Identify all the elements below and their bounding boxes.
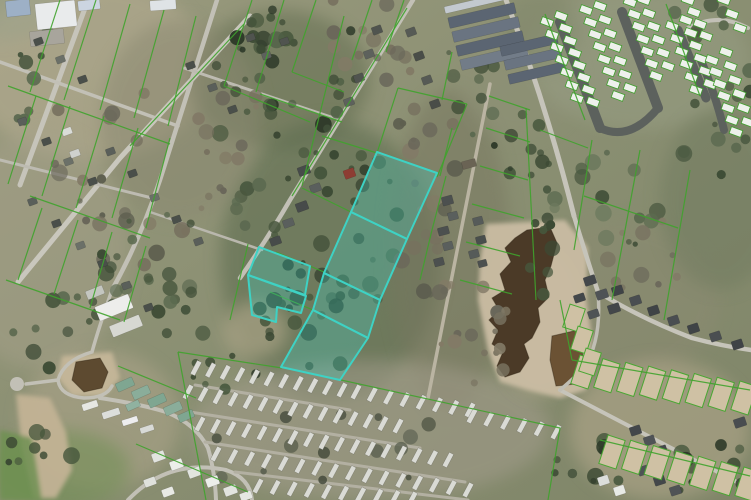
aerial-map-view[interactable] bbox=[0, 0, 751, 500]
aerial-map[interactable] bbox=[0, 0, 751, 500]
